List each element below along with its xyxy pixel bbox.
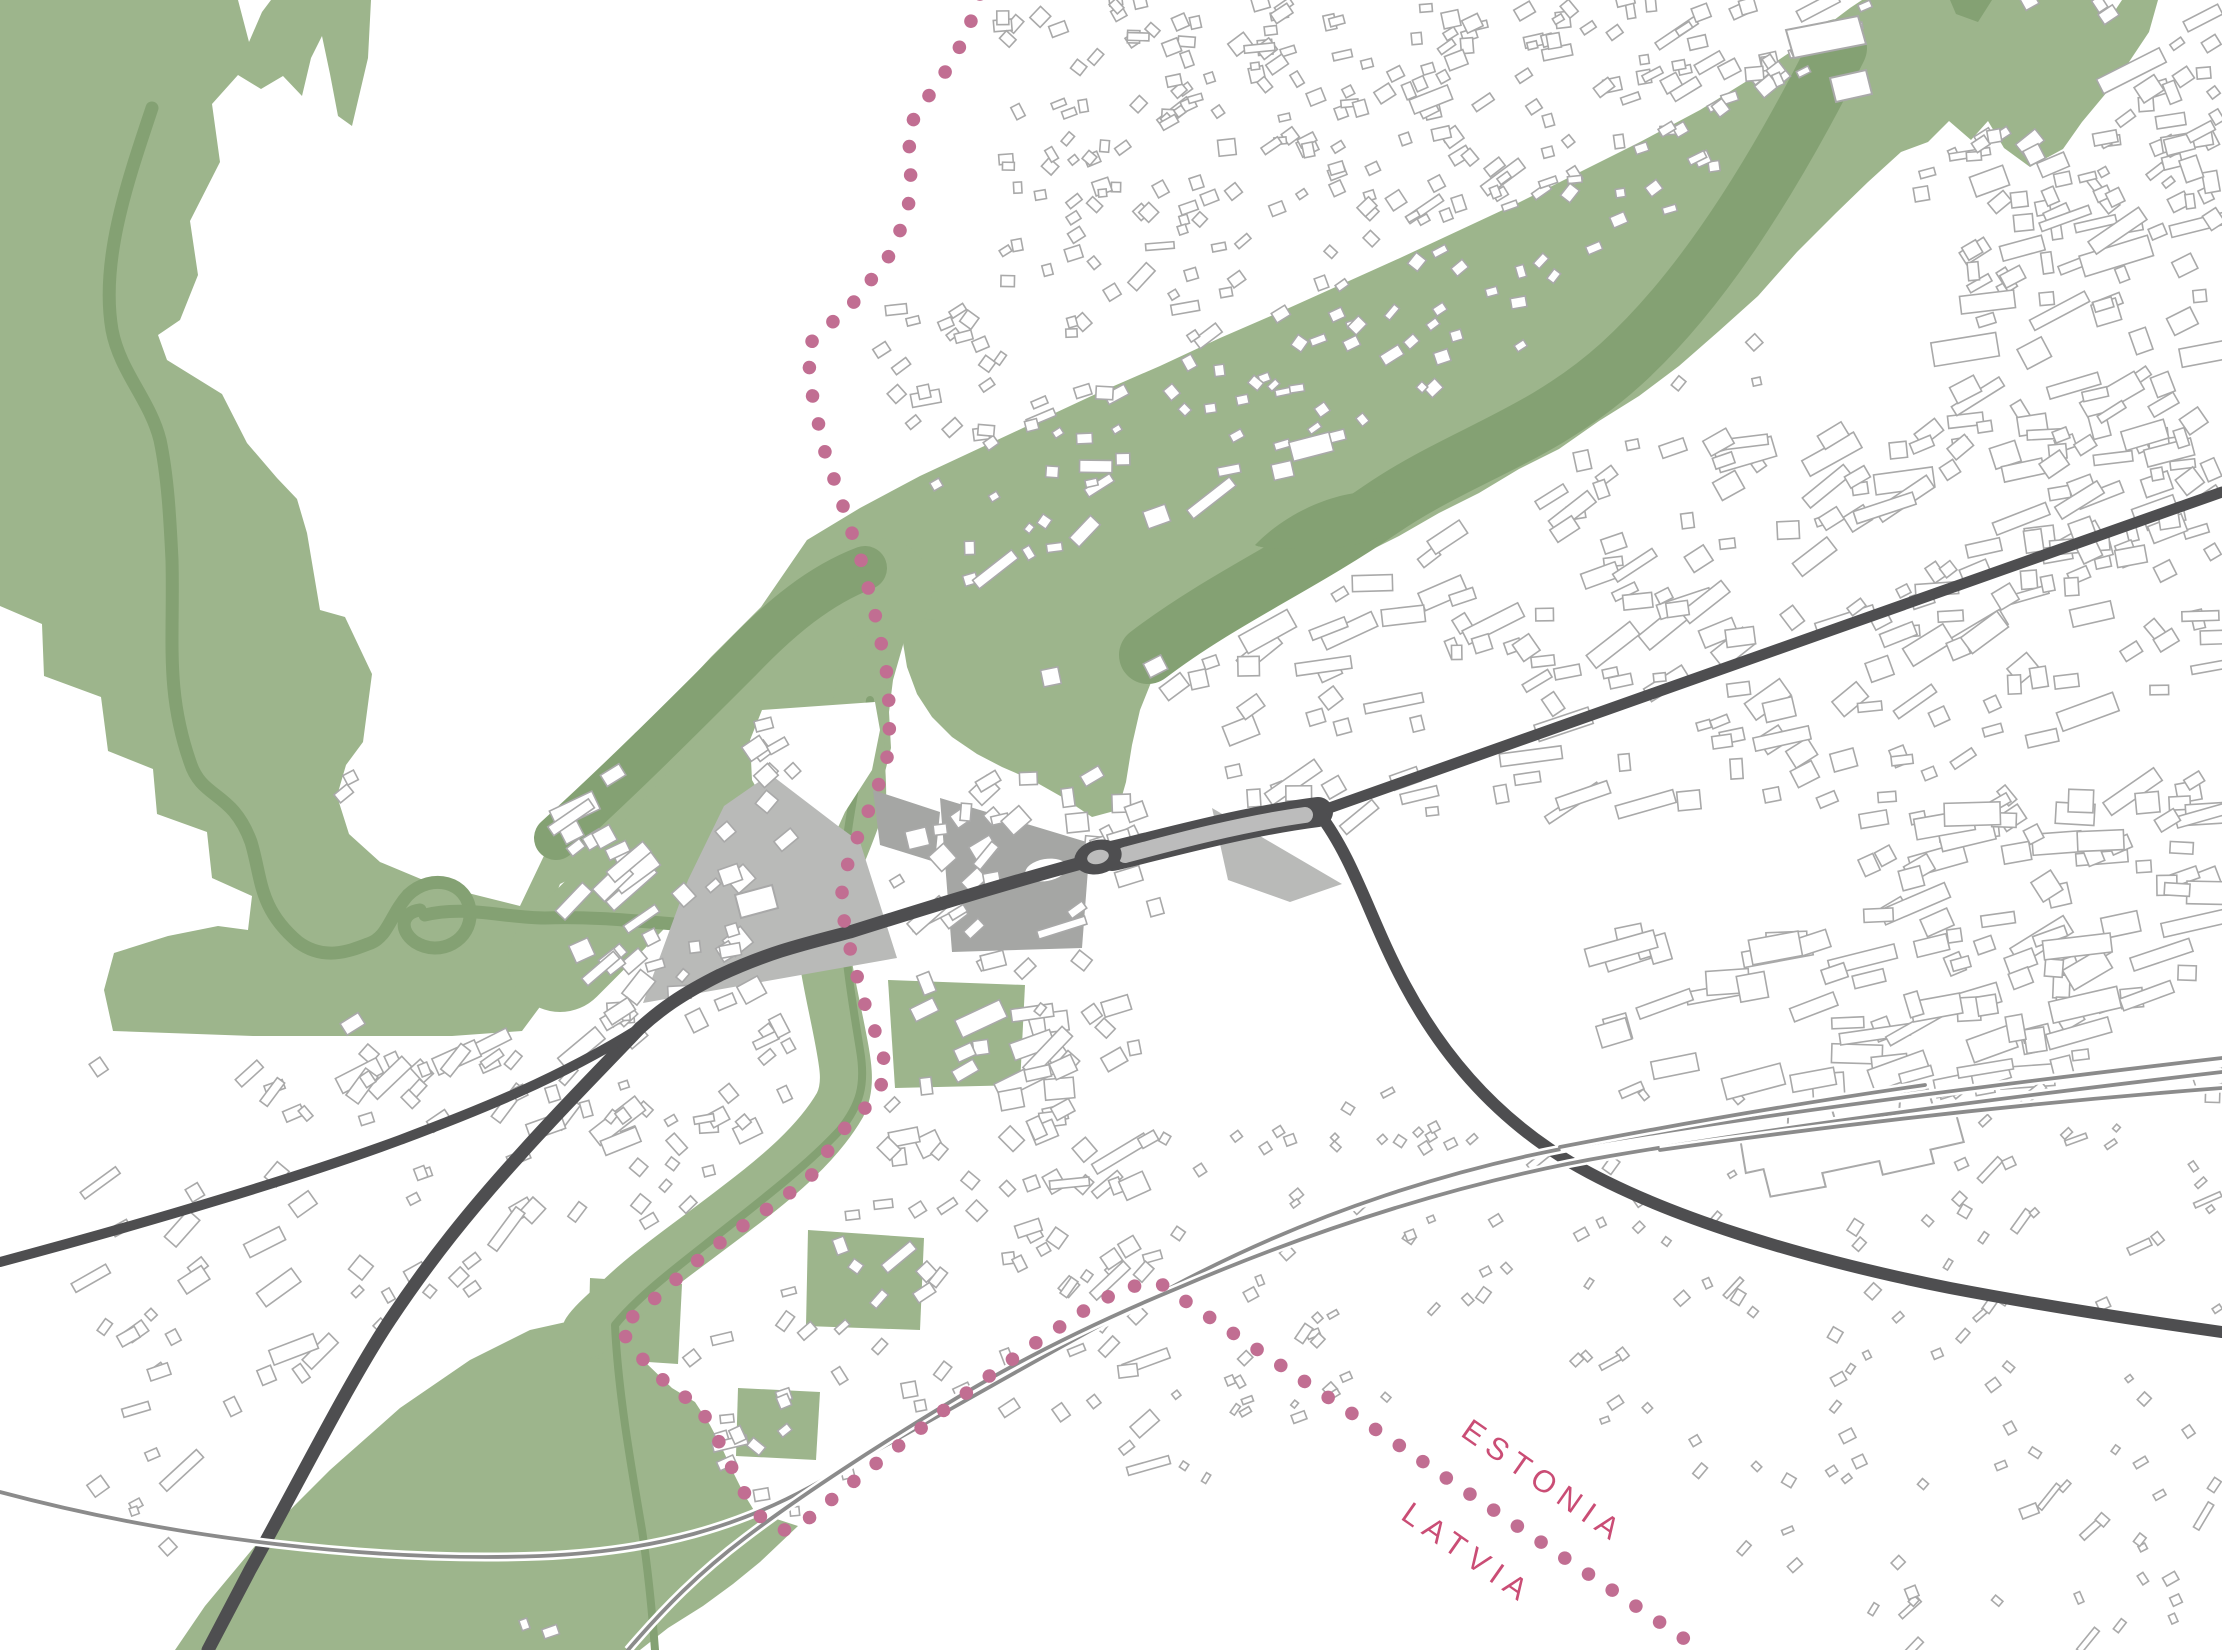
building-footprint [224, 1396, 242, 1416]
building-footprint [938, 317, 954, 331]
building-footprint [1896, 584, 1911, 598]
building-footprint [1638, 1089, 1649, 1101]
building-footprint [2178, 965, 2197, 980]
building-footprint [1087, 256, 1100, 270]
building-footprint [1239, 1407, 1251, 1417]
building-footprint [1472, 93, 1494, 112]
building-footprint [998, 1088, 1024, 1111]
building-footprint [2105, 1139, 2117, 1150]
building-footprint [1902, 1637, 1924, 1650]
building-footprint [1377, 1134, 1387, 1144]
building-footprint [1580, 21, 1596, 35]
building-footprint [1712, 734, 1733, 749]
building-footprint [978, 424, 995, 436]
building-footprint [873, 341, 891, 358]
building-footprint [1625, 439, 1639, 451]
building-footprint [1051, 98, 1066, 109]
building-footprint [1044, 1077, 1075, 1100]
building-footprint [2005, 1014, 2026, 1042]
building-footprint [407, 1193, 421, 1206]
building-footprint [1074, 384, 1092, 399]
building-footprint [1237, 694, 1265, 720]
building-footprint [2127, 1238, 2152, 1255]
building-footprint [1295, 656, 1352, 676]
building-footprint [1984, 695, 2002, 713]
building-footprint [1451, 645, 1461, 659]
building-footprint [999, 245, 1012, 257]
building-footprint [1189, 16, 1201, 30]
building-footprint [1864, 1283, 1881, 1300]
building-footprint [1269, 201, 1286, 217]
building-footprint [2151, 1231, 2164, 1245]
building-footprint [2148, 223, 2167, 240]
building-footprint [2074, 1592, 2084, 1604]
building-footprint [1974, 935, 1996, 954]
border-labels-layer: ESTONIA LATVIA [1396, 1412, 1633, 1611]
building-footprint [2200, 630, 2222, 644]
building-footprint [2061, 1128, 2073, 1140]
building-footprint [1238, 1350, 1253, 1365]
building-footprint [964, 541, 974, 555]
building-footprint [1671, 376, 1686, 391]
building-footprint [1070, 59, 1086, 75]
building-footprint [1312, 1312, 1323, 1323]
building-footprint [1562, 135, 1575, 148]
building-footprint [1693, 1463, 1708, 1479]
building-footprint [1302, 142, 1315, 158]
building-footprint [2024, 1027, 2047, 1053]
building-footprint [1514, 1, 1536, 21]
building-footprint [178, 1266, 210, 1294]
building-footprint [2162, 176, 2175, 188]
building-footprint [1331, 1133, 1339, 1141]
building-footprint [980, 950, 1006, 970]
building-footprint [1116, 453, 1130, 465]
building-footprint [2170, 1594, 2183, 1606]
building-footprint [1719, 538, 1735, 549]
building-footprint [1278, 113, 1291, 122]
building-footprint [917, 384, 931, 399]
building-footprint [1030, 6, 1051, 27]
building-footprint [1241, 1396, 1253, 1405]
building-footprint [1728, 1170, 1737, 1178]
building-footprint [640, 1212, 659, 1229]
building-footprint [1381, 1392, 1391, 1402]
building-footprint [776, 1311, 795, 1332]
building-footprint [2150, 467, 2163, 481]
rail-second [628, 1072, 2222, 1650]
building-footprint [1385, 190, 1407, 211]
building-footprint [2172, 253, 2198, 277]
estonia-label: ESTONIA [1456, 1412, 1633, 1551]
building-footprint [997, 11, 1009, 25]
building-footprint [1247, 789, 1261, 807]
building-footprint [1839, 1428, 1856, 1444]
building-footprint [504, 1051, 522, 1070]
building-footprint [260, 1078, 285, 1107]
building-footprint [1023, 1175, 1040, 1192]
building-footprint [1387, 66, 1405, 82]
building-footprint [1633, 1221, 1645, 1233]
building-footprint [1171, 13, 1189, 31]
building-footprint [2200, 458, 2221, 482]
building-footprint [1917, 1479, 1928, 1490]
building-footprint [1098, 189, 1107, 197]
building-footprint [1066, 329, 1078, 338]
building-footprint [1623, 592, 1653, 610]
building-footprint [1956, 1328, 1970, 1343]
building-footprint [1426, 807, 1439, 817]
building-footprint [289, 1191, 318, 1218]
building-footprint [87, 1475, 109, 1497]
building-footprint [720, 1414, 734, 1423]
building-footprint [1361, 58, 1374, 69]
building-footprint [1659, 438, 1687, 458]
building-footprint [2041, 252, 2054, 274]
building-footprint [1651, 1053, 1699, 1079]
building-footprint [2133, 1456, 2148, 1469]
building-footprint [1064, 245, 1083, 262]
building-footprint [1130, 96, 1147, 113]
building-footprint [1863, 1350, 1872, 1360]
building-footprint [1677, 790, 1702, 811]
building-footprint [1250, 0, 1270, 12]
building-footprint [1046, 1227, 1068, 1249]
building-footprint [1331, 586, 1348, 601]
building-footprint [1878, 791, 1897, 802]
building-footprint [1939, 459, 1960, 480]
building-footprint [1145, 242, 1174, 251]
building-footprint [1067, 226, 1085, 243]
building-footprint [1061, 107, 1077, 119]
building-footprint [1462, 13, 1483, 33]
building-footprint [1211, 105, 1224, 118]
building-footprint [1179, 200, 1199, 215]
building-footprint [185, 1183, 204, 1203]
building-footprint [2003, 1361, 2015, 1373]
building-footprint [2136, 860, 2151, 873]
building-footprint [719, 1083, 739, 1103]
map-canvas: ESTONIA LATVIA [0, 0, 2222, 1650]
building-footprint [725, 923, 740, 938]
building-footprint [1642, 1403, 1652, 1413]
building-footprint [999, 1126, 1025, 1152]
building-footprint [2011, 1209, 2032, 1234]
building-footprint [906, 316, 920, 326]
building-footprint [1314, 275, 1329, 291]
building-footprint [1596, 1018, 1632, 1048]
building-footprint [1615, 188, 1625, 198]
building-footprint [1979, 1115, 1992, 1127]
building-footprint [831, 1367, 847, 1385]
building-footprint [1266, 54, 1289, 75]
building-footprint [1725, 627, 1756, 648]
building-footprint [1101, 995, 1132, 1018]
building-footprint [2137, 1572, 2148, 1584]
building-footprint [689, 941, 701, 954]
building-footprint [1332, 49, 1352, 61]
building-footprint [1955, 1158, 1969, 1171]
building-footprint [1066, 193, 1082, 208]
building-footprint [999, 1180, 1015, 1196]
building-footprint [2182, 1425, 2195, 1438]
building-footprint [1291, 1400, 1299, 1408]
building-footprint [568, 1202, 587, 1222]
building-footprint [2023, 529, 2044, 554]
building-footprint [1684, 545, 1713, 573]
building-footprint [1128, 263, 1155, 291]
building-footprint [2187, 881, 2222, 905]
building-footprint [1188, 669, 1209, 690]
building-footprint [1066, 211, 1081, 225]
building-footprint [884, 1097, 899, 1112]
building-footprint [1413, 1127, 1423, 1137]
building-footprint [1081, 1270, 1093, 1283]
building-footprint [1830, 1400, 1842, 1413]
building-footprint [1211, 242, 1226, 252]
building-footprint [1541, 146, 1554, 158]
building-footprint [1959, 290, 2015, 314]
building-footprint [1322, 775, 1347, 799]
building-footprint [2077, 1627, 2100, 1650]
building-footprint [1891, 1555, 1905, 1569]
building-footprint [2191, 659, 2222, 675]
building-footprint [2120, 980, 2175, 1010]
building-footprint [1225, 1375, 1236, 1386]
building-footprint [2017, 337, 2052, 369]
building-footprint [2193, 1502, 2213, 1530]
building-footprint [1100, 140, 1110, 152]
building-footprint [1493, 784, 1508, 803]
building-footprint [1985, 1377, 2001, 1392]
building-footprint [1868, 1603, 1879, 1616]
building-footprint [1967, 262, 1980, 281]
building-footprint [1319, 686, 1343, 710]
building-footprint [1061, 132, 1075, 146]
building-footprint [1201, 1473, 1210, 1484]
building-footprint [1184, 267, 1199, 281]
building-footprint [2069, 601, 2114, 627]
building-footprint [2008, 675, 2022, 694]
building-footprint [351, 1285, 363, 1297]
building-footprint [1046, 542, 1063, 552]
building-footprint [1904, 991, 1924, 1018]
building-footprint [1546, 33, 1561, 50]
building-footprint [1410, 715, 1425, 732]
building-footprint [920, 1077, 933, 1095]
rail-second-casing [628, 1072, 2222, 1650]
building-footprint [1730, 758, 1743, 779]
building-footprint [2137, 1392, 2151, 1406]
building-footprint [1451, 195, 1467, 213]
building-footprint [1103, 283, 1121, 301]
building-footprint [292, 1363, 310, 1383]
building-footprint [117, 1326, 141, 1346]
building-footprint [2029, 1447, 2042, 1459]
building-footprint [1068, 155, 1079, 166]
building-footprint [1536, 608, 1554, 621]
building-footprint [1342, 85, 1355, 98]
building-footprint [1330, 1141, 1341, 1152]
building-footprint [901, 1381, 918, 1398]
building-footprint [1076, 433, 1092, 444]
building-footprint [874, 1199, 893, 1209]
building-footprint [1864, 908, 1894, 922]
building-footprint [1019, 772, 1037, 785]
building-footprint [1639, 55, 1649, 65]
building-footprint [979, 378, 995, 392]
building-footprint [1526, 99, 1543, 115]
building-footprint [1329, 180, 1345, 197]
building-footprint [2194, 1192, 2222, 1208]
building-footprint [1782, 1526, 1794, 1535]
building-footprint [1081, 1003, 1102, 1024]
building-footprint [1041, 667, 1062, 687]
building-footprint [1179, 1461, 1189, 1471]
building-footprint [1365, 161, 1380, 175]
building-footprint [165, 1329, 181, 1345]
building-footprint [960, 803, 972, 821]
building-footprint [1973, 1309, 1987, 1322]
building-footprint [1501, 1262, 1513, 1274]
building-footprint [2179, 155, 2204, 183]
building-footprint [1284, 1134, 1297, 1147]
building-footprint [1642, 66, 1663, 82]
building-footprint [753, 1488, 769, 1502]
building-footprint [2207, 86, 2220, 99]
building-footprint [1130, 1410, 1159, 1438]
building-footprint [1049, 21, 1069, 38]
building-footprint [1071, 950, 1092, 971]
building-footprint [1645, 0, 1656, 12]
building-footprint [1489, 1214, 1503, 1227]
building-footprint [909, 1201, 927, 1218]
building-footprint [683, 1349, 701, 1367]
building-footprint [1333, 718, 1351, 736]
building-footprint [2204, 543, 2221, 560]
building-footprint [1738, 0, 1757, 15]
building-footprint [1271, 460, 1294, 480]
building-footprint [244, 1227, 286, 1258]
building-footprint [2161, 909, 2222, 938]
building-footprint [545, 1085, 561, 1103]
building-footprint [1780, 605, 1804, 630]
building-footprint [1444, 50, 1468, 71]
building-footprint [1172, 1390, 1181, 1399]
building-footprint [1250, 62, 1259, 70]
building-footprint [488, 1207, 525, 1252]
building-footprint [1214, 364, 1225, 377]
building-footprint [2206, 1205, 2215, 1214]
building-footprint [1613, 134, 1624, 149]
building-footprint [1790, 992, 1838, 1022]
building-footprint [1999, 235, 2045, 261]
building-footprint [1852, 1237, 1866, 1251]
building-footprint [1014, 958, 1036, 979]
building-footprint [579, 1100, 592, 1117]
building-footprint [1556, 781, 1611, 811]
building-footprint [1818, 507, 1844, 531]
building-footprint [1522, 670, 1552, 693]
building-footprint [2054, 673, 2079, 689]
building-footprint [1381, 605, 1425, 626]
building-footprint [1296, 189, 1308, 200]
building-footprint [1688, 35, 1708, 51]
building-footprint [1978, 1232, 1989, 1244]
building-footprint [1255, 1275, 1264, 1286]
building-footprint [2195, 1177, 2207, 1188]
building-footprint [2003, 1421, 2016, 1435]
building-footprint [1600, 1416, 1610, 1424]
building-footprint [1689, 1435, 1701, 1447]
building-footprint [1295, 1323, 1313, 1343]
building-footprint [1922, 1215, 1934, 1227]
building-footprint [2175, 467, 2204, 496]
building-footprint [1889, 441, 1908, 459]
building-footprint [1243, 1287, 1259, 1302]
building-footprint [1115, 140, 1131, 155]
building-footprint [382, 1288, 396, 1303]
building-footprint [1289, 384, 1304, 393]
building-footprint [1127, 33, 1149, 41]
building-footprint [1950, 748, 1976, 769]
building-footprint [1898, 866, 1924, 891]
building-footprint [2153, 1489, 2166, 1500]
building-footprint [2150, 685, 2169, 695]
building-footprint [1238, 656, 1260, 676]
building-footprint [1846, 1363, 1856, 1374]
building-footprint [1119, 1440, 1135, 1455]
building-footprint [1713, 470, 1745, 500]
building-footprint [1393, 1135, 1406, 1148]
building-footprint [2010, 191, 2028, 208]
building-footprint [1928, 706, 1950, 727]
building-footprint [1462, 1293, 1474, 1305]
building-footprint [1527, 41, 1538, 50]
building-footprint [1428, 1303, 1440, 1316]
building-footprint [2201, 34, 2221, 52]
building-footprint [2182, 611, 2219, 622]
building-footprint [1225, 764, 1242, 778]
building-footprint [892, 357, 911, 374]
building-footprint [2125, 1375, 2133, 1383]
building-footprint [2019, 1503, 2039, 1519]
building-footprint [2202, 170, 2220, 193]
building-footprint [1067, 316, 1078, 328]
building-footprint [1710, 714, 1730, 729]
building-footprint [1586, 622, 1639, 669]
building-footprint [1745, 66, 1764, 81]
building-footprint [1943, 1259, 1953, 1270]
building-footprint [1228, 271, 1246, 288]
building-footprint [618, 1080, 629, 1090]
building-footprint [1101, 1047, 1128, 1072]
building-footprint [1607, 1395, 1623, 1410]
building-footprint [1096, 386, 1114, 400]
building-footprint [2207, 1477, 2221, 1492]
building-footprint [1118, 1363, 1139, 1378]
building-footprint [2113, 1124, 2121, 1132]
building-footprint [2111, 1445, 2120, 1455]
building-footprint [966, 1200, 987, 1221]
building-footprint [1621, 92, 1641, 105]
building-footprint [845, 1210, 860, 1220]
building-footprint [1601, 533, 1627, 554]
building-footprint [1752, 377, 1762, 386]
building-footprint [934, 1361, 952, 1381]
building-footprint [1352, 99, 1368, 117]
building-footprint [1919, 167, 1936, 178]
